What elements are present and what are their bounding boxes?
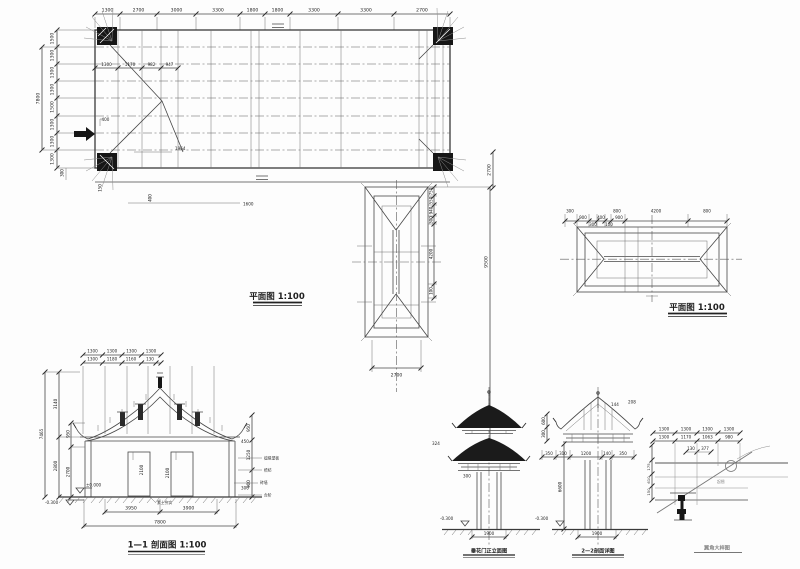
- dim-label: 300: [429, 216, 434, 224]
- dim-label: 130: [687, 446, 695, 451]
- cad-canvas: 1300 2700 3000 3300 1800 1800 3300 3300 …: [0, 0, 800, 569]
- dim-label-total: 9500: [484, 256, 490, 268]
- dim-label: 1300: [659, 427, 670, 432]
- dim-label: 1300: [126, 349, 137, 354]
- roof-plan-title-text: 平面图 1:100: [669, 303, 725, 313]
- floor-plan-title-text: 平面图 1:100: [249, 292, 305, 302]
- gate-roof-plan: 750 550 940 300 4200 100 9500 2700: [352, 180, 496, 448]
- dim-label: 400: [102, 117, 110, 122]
- dim-label: 300: [541, 430, 546, 438]
- dim-label: 100: [605, 222, 613, 227]
- dim-label: 1800: [247, 8, 259, 14]
- dim-label: 350: [619, 451, 627, 456]
- dim-label-total: 7800: [36, 93, 42, 105]
- dim-label: 1250: [246, 449, 251, 460]
- section-title: 1—1 剖面图 1:100: [128, 540, 207, 555]
- dim-label: 1063: [702, 435, 713, 440]
- floor-plan: 1300 2700 3000 3300 1800 1800 3300 3300 …: [36, 8, 496, 306]
- dim-label: 950: [66, 430, 71, 438]
- dim-label: 1300: [50, 136, 56, 148]
- dim-label: 4200: [429, 248, 434, 259]
- dim-label: 2700: [416, 8, 428, 14]
- lower-roof: [452, 438, 526, 461]
- roof-plan-title: 平面图 1:100: [668, 303, 727, 317]
- dim-label: 3140: [53, 398, 58, 409]
- note-label: 台阶: [264, 493, 272, 498]
- corner-pier: [84, 8, 117, 45]
- dim-label: 3300: [360, 8, 372, 14]
- eave-detail-title: 翼角大样图: [694, 544, 742, 553]
- dim-label: 400: [148, 194, 153, 202]
- level-marker-icon: [76, 488, 92, 493]
- dim-label-total: 6600: [558, 481, 563, 492]
- dim-label: 1300: [724, 427, 735, 432]
- drawing-sheet: 1300 2700 3000 3300 1800 1800 3300 3300 …: [0, 0, 800, 569]
- dim-label: 2100: [165, 467, 170, 478]
- dim-label: 300: [241, 486, 249, 491]
- dim-label: 1160: [126, 357, 137, 362]
- dim-label: 610: [646, 476, 651, 484]
- dim-label-total: 7800: [154, 520, 166, 526]
- dim-label: 1200: [581, 451, 592, 456]
- door-opening: [171, 452, 193, 496]
- dim-label: 1170: [125, 62, 136, 67]
- dim-label: 1900: [592, 531, 603, 536]
- ridge-finial: [158, 377, 162, 388]
- dim-label: 150: [98, 184, 103, 192]
- dim-label: 2100: [139, 464, 144, 475]
- dim-label: 800: [613, 209, 621, 214]
- dim-label: 2700: [66, 466, 71, 477]
- dim-label: 300: [463, 474, 471, 479]
- dim-label: 1600: [243, 202, 254, 207]
- dim-label: 550: [429, 196, 434, 204]
- dim-label: 3000: [171, 8, 183, 14]
- dim-label: 800: [703, 209, 711, 214]
- dim-label: 1500: [50, 33, 56, 45]
- dim-label: 1964: [175, 146, 186, 151]
- section-cut-arrow-icon: [74, 127, 95, 141]
- dim-label: 324: [432, 441, 440, 446]
- dim-label: 300: [60, 169, 65, 177]
- dim-label: 2700: [391, 373, 403, 379]
- level-marker-icon: [461, 521, 469, 526]
- floor-plan-title: 平面图 1:100: [249, 292, 305, 306]
- dim-label: 980: [725, 435, 733, 440]
- dim-label: 947: [166, 62, 174, 67]
- dim-label: 1300: [50, 119, 56, 131]
- dim-label: 1300: [107, 349, 118, 354]
- dim-label: 1170: [681, 435, 692, 440]
- dim-label: 130: [146, 357, 154, 362]
- section-drawing: 1300 1300 1300 1300 1300 1180 1160 130 2…: [39, 349, 279, 555]
- dim-label: 3950: [125, 506, 137, 512]
- dim-label: 3300: [212, 8, 224, 14]
- level-label: -0.300: [535, 516, 549, 521]
- dim-label: 600: [541, 417, 546, 425]
- upper-roof: [456, 405, 522, 428]
- elevation-section-title-text: 2—2剖面详图: [581, 547, 614, 555]
- dim-label: 1300: [50, 84, 56, 96]
- dim-label: 400: [597, 215, 605, 220]
- dim-label: 900: [579, 215, 587, 220]
- elevation-front-title: 垂花门正立面图: [463, 547, 515, 558]
- elevation-section: 144 208 600 300 350 310 1200 140 350 660…: [535, 387, 648, 558]
- roof-plan: 300 800 4200 800 900 300 400 100 900 平面图…: [560, 209, 742, 317]
- eave-detail: 1300 1300 1300 1300 1300 1170 1063 980 1…: [646, 427, 788, 553]
- dim-label: 2800: [53, 460, 58, 471]
- dim-label: 150: [646, 488, 651, 496]
- dim-label: 350: [545, 451, 553, 456]
- level-label: -0.300: [440, 516, 454, 521]
- note-label: 起翘: [717, 479, 725, 484]
- dim-label: 2700: [133, 8, 145, 14]
- level-label: -0.300: [45, 500, 59, 505]
- dim-label: 1180: [107, 357, 118, 362]
- dim-label: 982: [148, 62, 156, 67]
- dim-label: 1800: [272, 8, 284, 14]
- elevation-front: 324 300 -0.300 1900 垂花门正立面图: [432, 387, 540, 558]
- dim-label: 950: [246, 424, 251, 432]
- level-label: ±0.000: [86, 483, 102, 488]
- note-label: 檐枋: [264, 468, 272, 473]
- dim-label: 1300: [87, 357, 98, 362]
- dim-label: 750: [429, 187, 434, 195]
- dim-label: 1300: [681, 427, 692, 432]
- dim-label: 450: [241, 439, 249, 444]
- dim-label: 2700: [487, 164, 493, 176]
- dim-label: 140: [603, 451, 611, 456]
- dim-label: 4200: [651, 209, 662, 214]
- dim-label: 940: [429, 206, 434, 214]
- dim-label: 300: [589, 222, 597, 227]
- dim-label: 1300: [702, 427, 713, 432]
- section-title-text: 1—1 剖面图 1:100: [128, 540, 207, 551]
- elevation-section-title: 2—2剖面详图: [572, 547, 624, 558]
- dim-label: 175: [646, 463, 651, 471]
- dim-label: 1300: [102, 8, 114, 14]
- dim-label: 1500: [50, 101, 56, 113]
- dim-label: 1300: [50, 153, 56, 165]
- dim-label: 1300: [659, 435, 670, 440]
- dim-label: 300: [566, 209, 574, 214]
- level-marker-icon: [556, 521, 564, 526]
- note-label: 砖墙: [260, 480, 268, 485]
- dim-label: 1300: [101, 62, 112, 67]
- dim-label: 208: [628, 400, 636, 405]
- dim-label: 900: [615, 215, 623, 220]
- dim-label: 144: [611, 402, 619, 407]
- column-detail: [670, 493, 696, 520]
- dim-label: 1300: [50, 67, 56, 79]
- dim-label: 100: [429, 287, 434, 295]
- dim-label: 1300: [50, 50, 56, 62]
- dim-label: 3900: [183, 506, 195, 512]
- eave-detail-title-text: 翼角大样图: [703, 544, 730, 552]
- dim-label: 3300: [308, 8, 320, 14]
- dim-label-total: 7465: [39, 428, 44, 439]
- dim-label: 310: [559, 451, 567, 456]
- dim-label: 1900: [484, 531, 495, 536]
- elevation-front-title-text: 垂花门正立面图: [471, 547, 507, 555]
- dim-label: 1300: [146, 349, 157, 354]
- dim-label: 1300: [87, 349, 98, 354]
- corner-pier: [433, 8, 466, 45]
- dim-label: 377: [701, 446, 709, 451]
- note-label: 檩椽望板: [264, 456, 279, 461]
